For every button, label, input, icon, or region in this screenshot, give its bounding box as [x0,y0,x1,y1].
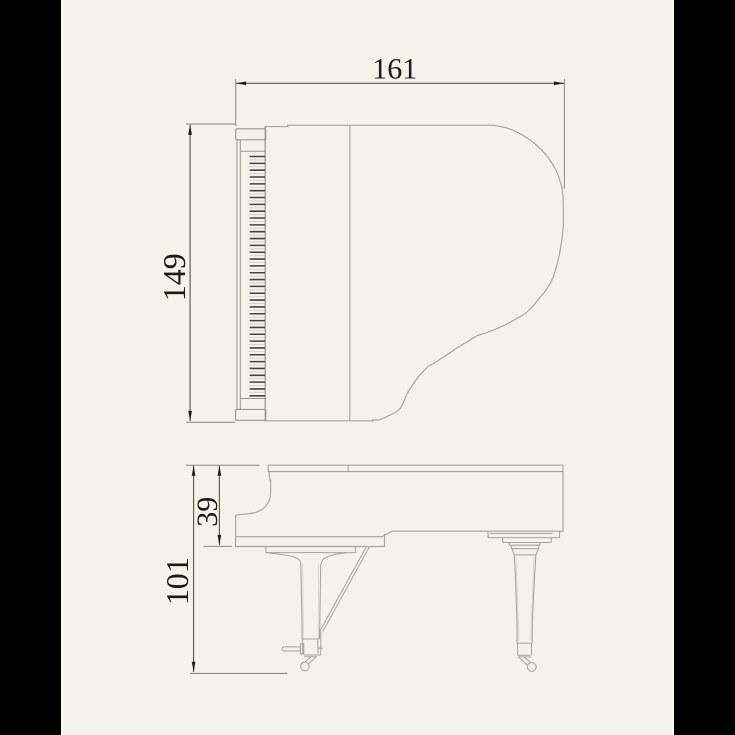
svg-text:149: 149 [156,253,192,301]
svg-text:161: 161 [372,53,417,86]
svg-text:101: 101 [159,557,195,605]
